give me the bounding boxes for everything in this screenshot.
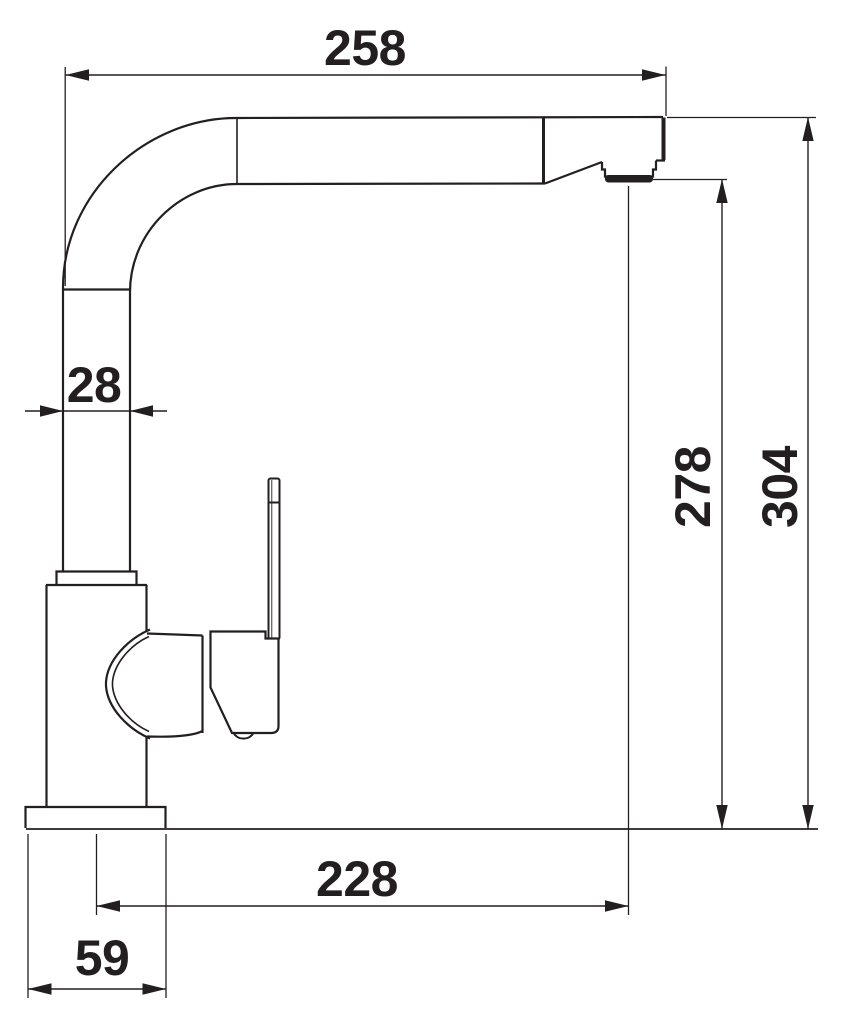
base-plate-outline xyxy=(26,807,166,828)
arrowhead-278-bottom xyxy=(716,805,727,829)
aerator-outlet-band xyxy=(606,176,653,183)
dim-label-base-width: 59 xyxy=(75,930,130,986)
faucet-outline-group xyxy=(26,117,666,828)
arrowhead-278-top xyxy=(716,179,727,203)
dim-label-overall-height: 304 xyxy=(752,445,808,528)
arrowhead-228-left xyxy=(97,900,121,911)
spout-outer-curve xyxy=(63,117,663,288)
dim-label-outlet-projection: 228 xyxy=(316,851,398,907)
dimension-outlet-height: 278 xyxy=(653,179,728,829)
faucet-technical-drawing: 258 28 278 304 xyxy=(0,0,844,1024)
collar-outline xyxy=(57,572,137,585)
arrowhead-304-top xyxy=(802,117,813,141)
dimension-tube-width: 28 xyxy=(25,357,167,417)
handle-midblock-bottom xyxy=(147,731,203,737)
aerator-steps xyxy=(602,161,656,177)
arrowhead-28-left xyxy=(40,405,63,416)
dimension-spout-reach: 258 xyxy=(65,20,666,286)
arrowhead-258-left xyxy=(66,69,90,80)
arrowhead-28-right xyxy=(130,405,153,416)
handle-midblock-top xyxy=(147,634,203,636)
spout-bottom-line xyxy=(237,184,545,185)
arrowhead-59-left xyxy=(28,983,52,994)
arrowhead-304-bottom xyxy=(802,805,813,829)
handle-cartridge-housing xyxy=(211,632,279,734)
dim-label-outlet-height: 278 xyxy=(665,446,721,528)
arrowhead-59-right xyxy=(143,983,167,994)
dimension-outlet-projection: 228 xyxy=(97,186,629,915)
spout-inner-curve xyxy=(130,184,237,292)
arrowhead-258-right xyxy=(642,69,666,80)
spray-head-underside-diagonal xyxy=(545,162,602,184)
dim-label-spout-reach: 258 xyxy=(324,20,406,76)
dim-label-tube-width: 28 xyxy=(67,357,122,413)
drawing-canvas: 258 28 278 304 xyxy=(0,0,844,1024)
arrowhead-228-right xyxy=(605,900,629,911)
